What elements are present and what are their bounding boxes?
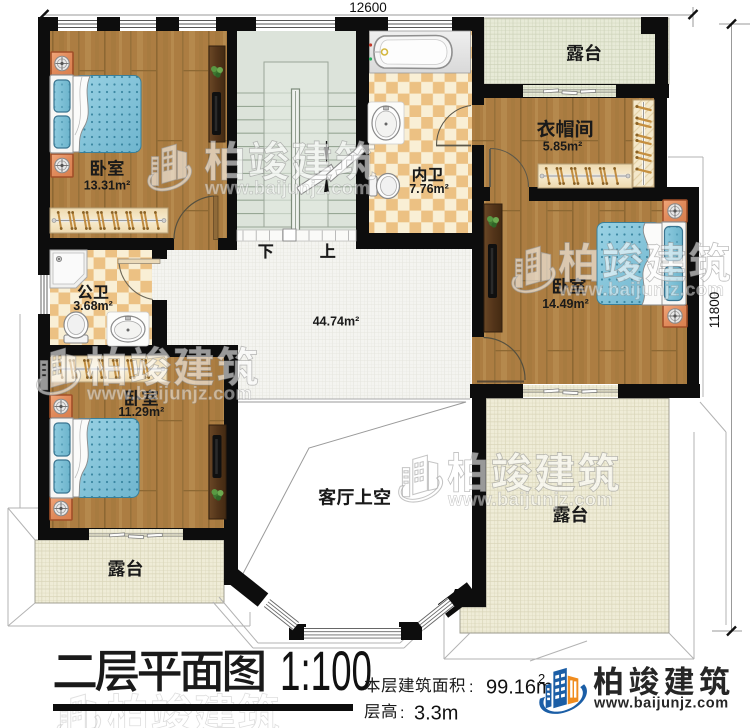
svg-text:13.31m²: 13.31m² — [84, 179, 131, 193]
svg-text:3.3m: 3.3m — [414, 703, 458, 725]
svg-text:12600: 12600 — [349, 0, 387, 15]
svg-text:1:100: 1:100 — [280, 639, 372, 702]
svg-text:11.29m²: 11.29m² — [118, 405, 164, 419]
svg-text:7.76m²: 7.76m² — [409, 182, 449, 196]
svg-text:11800: 11800 — [707, 292, 722, 329]
svg-text:www.baijunjz.com: www.baijunjz.com — [558, 279, 724, 300]
svg-text::: : — [400, 705, 404, 722]
svg-text:2: 2 — [538, 671, 545, 686]
svg-text:www.baijunjz.com: www.baijunjz.com — [447, 489, 613, 510]
svg-text:5.85m²: 5.85m² — [543, 140, 583, 154]
svg-text:3.68m²: 3.68m² — [73, 299, 113, 313]
svg-text:www.baijunjz.com: www.baijunjz.com — [86, 383, 252, 404]
svg-text:www.baijunjz.com: www.baijunjz.com — [593, 696, 729, 712]
svg-text:www.baijunjz.com: www.baijunjz.com — [204, 177, 370, 198]
svg-text::: : — [469, 679, 473, 696]
svg-text:44.74m²: 44.74m² — [313, 315, 360, 329]
